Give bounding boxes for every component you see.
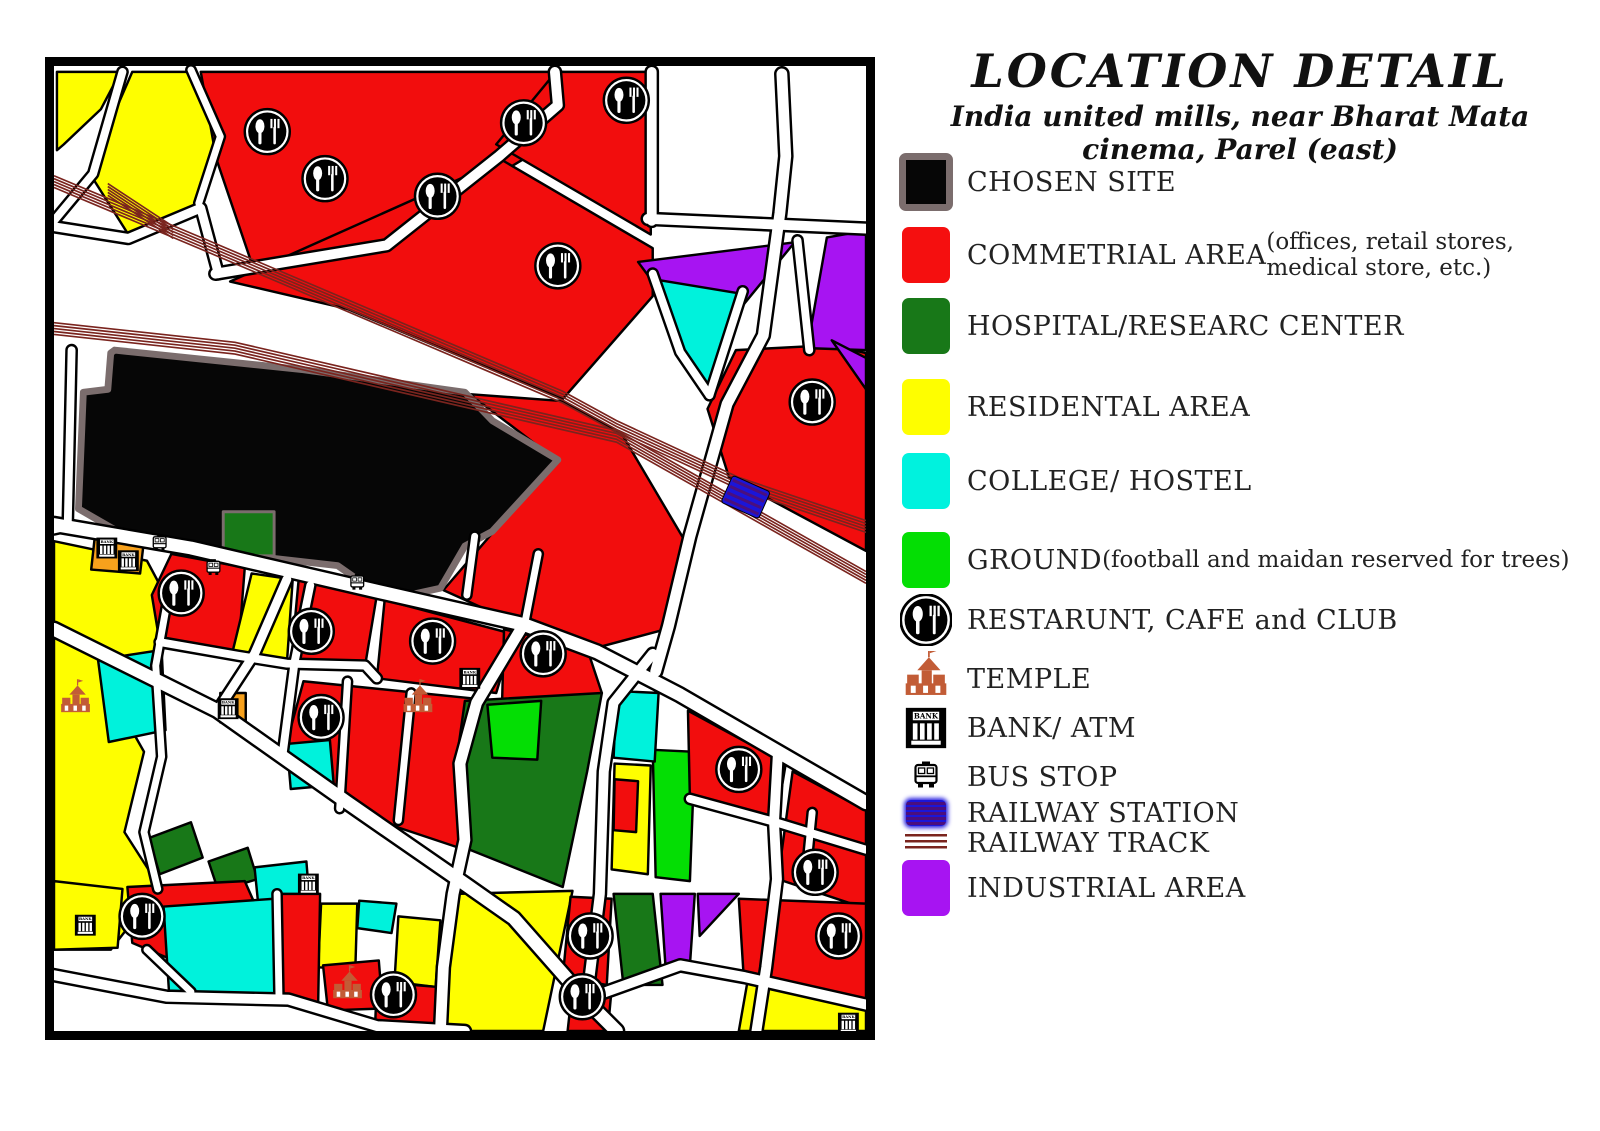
commercial-area-color-swatch <box>902 227 950 283</box>
commercial-area-swatch <box>885 227 967 283</box>
residential-area-swatch <box>885 379 967 435</box>
restaurant-icon <box>245 109 290 154</box>
chosen-site-label: CHOSEN SITE <box>967 167 1176 198</box>
svg-text:BANK: BANK <box>842 1015 855 1019</box>
bank-icon: BANK <box>118 550 139 571</box>
temple-swatch <box>885 651 967 707</box>
restaurant-icon <box>371 972 416 1017</box>
bank-icon: BANK <box>459 668 480 689</box>
bank-atm-swatch: BANK <box>885 705 967 751</box>
restaurant-icon <box>816 913 861 958</box>
bank-icon: BANK <box>75 915 96 936</box>
ground-label: GROUND <box>967 545 1102 576</box>
restaurant-icon <box>521 631 566 676</box>
legend-item-industrial-area: INDUSTRIAL AREA <box>885 858 1595 918</box>
commercial-area-sublabel: (offices, retail stores, medical store, … <box>1266 229 1595 281</box>
svg-text:BANK: BANK <box>122 553 135 557</box>
restaurant-icon <box>560 974 605 1019</box>
bus-icon <box>909 760 943 794</box>
city-map: BANKBANKBANKBANKBANKBANKBANK <box>45 57 875 1040</box>
svg-text:BANK: BANK <box>222 701 235 705</box>
svg-text:BANK: BANK <box>914 711 939 720</box>
bank-icon: BANK <box>903 705 949 751</box>
bus-icon <box>153 535 166 551</box>
legend-panel: LOCATION DETAIL India united mills, near… <box>885 0 1595 1040</box>
road-sw-stub-2 <box>277 894 279 999</box>
restaurant-icon <box>793 850 838 895</box>
legend-item-residential-area: RESIDENTAL AREA <box>885 378 1595 436</box>
region-purple-ne-2 <box>807 231 866 351</box>
bank-icon: BANK <box>218 698 239 719</box>
svg-text:BANK: BANK <box>302 876 315 880</box>
restaurant-cafe-club-swatch <box>885 594 967 646</box>
region-purple-south-2 <box>698 894 739 936</box>
residential-area-label: RESIDENTAL AREA <box>967 392 1250 423</box>
restaurant-icon <box>120 894 165 939</box>
restaurant-icon <box>289 609 334 654</box>
chosen-site-color-swatch <box>899 153 953 211</box>
restaurant-icon <box>299 695 344 740</box>
railway-station-label: RAILWAY STATION <box>967 798 1239 829</box>
ground-swatch <box>885 532 967 588</box>
college-hostel-color-swatch <box>902 453 950 509</box>
chosen-site-swatch <box>885 153 967 211</box>
commercial-area-label: COMMETRIAL AREA <box>967 240 1266 271</box>
legend-item-temple: TEMPLE <box>885 650 1595 708</box>
legend-item-bus-stop: BUS STOP <box>885 756 1595 798</box>
region-cyan-south-2 <box>357 901 396 933</box>
bus-stop-swatch <box>885 760 967 794</box>
bank-atm-label: BANK/ ATM <box>967 713 1136 744</box>
restaurant-icon <box>604 78 649 123</box>
ground-color-swatch <box>902 532 950 588</box>
legend-item-hospital-research: HOSPITAL/RESEARC CENTER <box>885 297 1595 355</box>
region-yellow-south-2 <box>318 904 357 970</box>
restaurant-icon <box>716 747 761 792</box>
bus-stop-label: BUS STOP <box>967 762 1117 793</box>
restaurant-icon <box>302 156 347 201</box>
hospital-research-label: HOSPITAL/RESEARC CENTER <box>967 311 1404 342</box>
legend-item-chosen-site: CHOSEN SITE <box>885 152 1595 212</box>
hospital-research-swatch <box>885 298 967 354</box>
legend-item-restaurant-cafe-club: RESTARUNT, CAFE and CLUB <box>885 595 1595 645</box>
bus-icon <box>207 559 220 575</box>
restaurant-icon <box>410 619 455 664</box>
bank-icon: BANK <box>96 538 117 559</box>
legend-item-bank-atm: BANKBANK/ ATM <box>885 702 1595 754</box>
college-hostel-label: COLLEGE/ HOSTEL <box>967 466 1252 497</box>
map-svg: BANKBANKBANKBANKBANKBANKBANK <box>54 66 866 1031</box>
temple-icon <box>898 651 954 707</box>
legend-item-railway-station: RAILWAY STATION <box>885 798 1595 828</box>
railway-station-swatch <box>906 800 946 826</box>
ground-sublabel: (football and maidan reserved for trees) <box>1102 547 1569 573</box>
hospital-research-color-swatch <box>902 298 950 354</box>
college-hostel-swatch <box>885 453 967 509</box>
railway-track-label: RAILWAY TRACK <box>967 828 1209 859</box>
legend-item-railway-track: RAILWAY TRACK <box>885 832 1595 854</box>
bank-icon: BANK <box>838 1013 859 1031</box>
residential-area-color-swatch <box>902 379 950 435</box>
legend-item-college-hostel: COLLEGE/ HOSTEL <box>885 452 1595 510</box>
region-red-northeast <box>708 345 866 551</box>
restaurant-icon <box>501 100 546 145</box>
legend-item-commercial-area: COMMETRIAL AREA (offices, retail stores,… <box>885 226 1595 284</box>
region-purple-south-1 <box>661 894 695 966</box>
industrial-area-color-swatch <box>902 860 950 916</box>
svg-text:BANK: BANK <box>79 917 92 921</box>
restaurant-icon <box>159 571 204 616</box>
industrial-area-swatch <box>885 860 967 916</box>
region-bgreen-a <box>487 701 541 760</box>
region-red-pocket <box>614 779 638 832</box>
restaurant-icon <box>790 380 835 425</box>
bus-icon <box>351 574 364 590</box>
legend-item-ground: GROUND (football and maidan reserved for… <box>885 531 1595 589</box>
industrial-area-label: INDUSTRIAL AREA <box>967 873 1246 904</box>
bank-icon: BANK <box>298 874 319 895</box>
restaurant-icon <box>535 243 580 288</box>
location-detail-poster: BANKBANKBANKBANKBANKBANKBANK LOCATION DE… <box>0 0 1600 1131</box>
temple-label: TEMPLE <box>967 664 1091 695</box>
railway-station-swatch <box>885 800 967 826</box>
restaurant-cafe-club-label: RESTARUNT, CAFE and CLUB <box>967 605 1398 636</box>
svg-text:BANK: BANK <box>101 540 114 544</box>
railway-track-swatch <box>905 834 947 852</box>
page-title: LOCATION DETAIL <box>885 44 1595 98</box>
restaurant-icon <box>900 594 952 646</box>
restaurant-icon <box>568 913 613 958</box>
restaurant-icon <box>415 174 460 219</box>
railway-track-swatch <box>885 834 967 852</box>
svg-text:BANK: BANK <box>464 670 477 674</box>
